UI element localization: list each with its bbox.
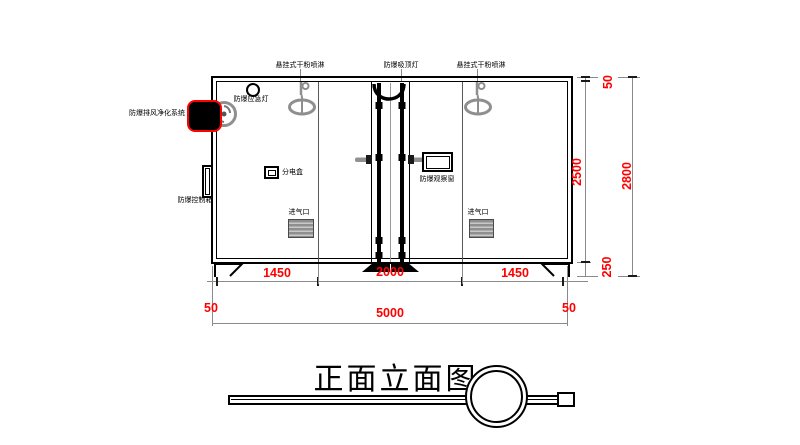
label-emergency-light: 防爆应急灯 [221, 96, 281, 104]
observation-window-inner [426, 156, 450, 169]
dim-total-height: 2800 [620, 136, 634, 216]
emergency-light-icon [246, 83, 260, 97]
elevation-drawing: 悬挂式干粉喷淋 防爆吸顶灯 悬挂式干粉喷淋 防爆应急灯 防爆排风净化系统 防爆控… [0, 0, 800, 445]
exhaust-unit-box [187, 100, 222, 132]
distribution-box [264, 166, 279, 179]
door-handle-left [355, 155, 372, 164]
label-observation-window: 防爆观察窗 [407, 176, 467, 184]
dim-offset-left: 50 [191, 301, 231, 315]
observation-window [422, 152, 453, 172]
dim-segment-right: 1450 [475, 266, 555, 280]
air-inlet-vent-right [469, 219, 494, 238]
title-circle-inner [470, 370, 523, 423]
ceiling-light-icon [374, 84, 404, 99]
dim-segment-middle: 2000 [350, 265, 430, 279]
label-sprinkler-left: 悬挂式干粉喷淋 [270, 62, 330, 70]
label-control-box: 防爆控制箱 [165, 197, 225, 205]
dim-roof-thickness: 50 [601, 62, 615, 102]
label-air-inlet-left: 进气口 [269, 209, 329, 217]
dim-offset-right: 50 [549, 301, 589, 315]
label-air-inlet-right: 进气口 [448, 209, 508, 217]
title-bar-endcap [557, 392, 575, 407]
dim-segment-left: 1450 [237, 266, 317, 280]
dim-total-width: 5000 [350, 306, 430, 320]
label-sprinkler-right: 悬挂式干粉喷淋 [451, 62, 511, 70]
control-box [202, 165, 213, 198]
label-distribution-box: 分电盒 [282, 169, 303, 177]
distribution-box-inner [268, 170, 276, 176]
sprinkler-left-icon [290, 82, 315, 114]
label-ceiling-light: 防爆吸顶灯 [371, 62, 431, 70]
door-hinges [376, 102, 406, 259]
control-box-inner [205, 168, 210, 195]
dim-interior-height: 2500 [570, 132, 584, 212]
label-exhaust-system: 防爆排风净化系统 [105, 110, 185, 118]
sprinkler-right-icon [466, 82, 491, 114]
air-inlet-vent-left [288, 219, 314, 238]
dim-base-height: 250 [600, 242, 614, 292]
